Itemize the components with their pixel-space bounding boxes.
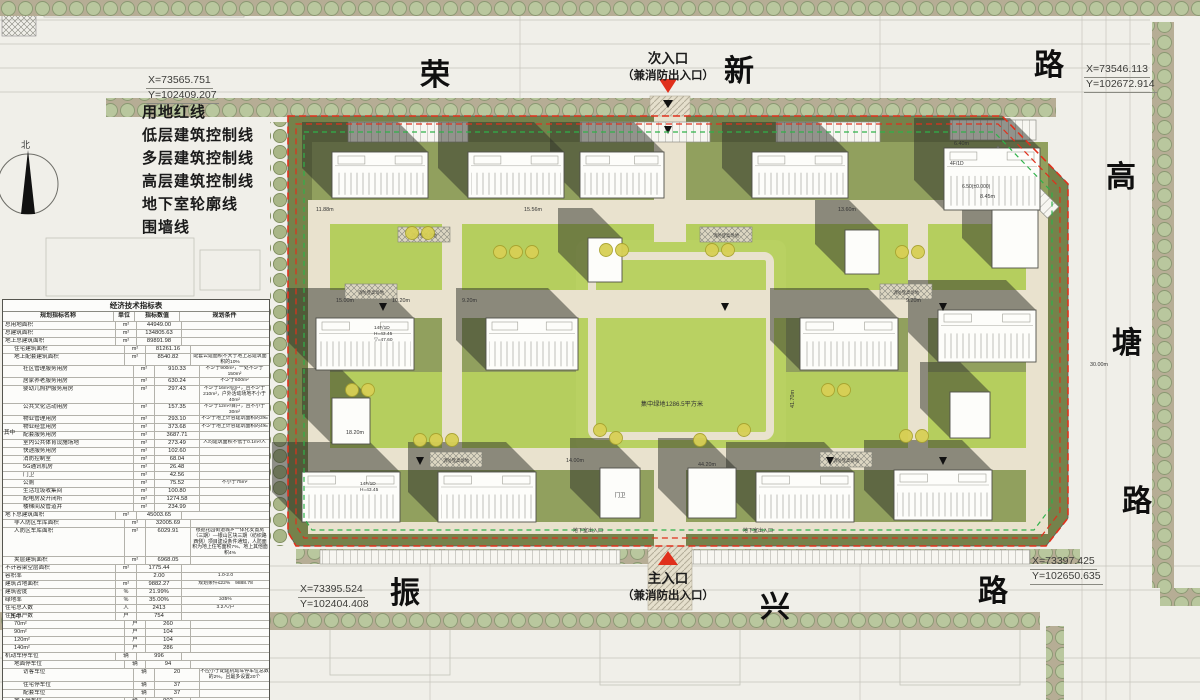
table-cell: 3.2人/户 [182,605,269,613]
building-facade [471,173,561,195]
building-floor-label: 14F/1D [360,481,376,487]
table-cell [191,346,269,354]
table-cell: 消防控制室 [3,456,134,464]
entrance-title: 主入口 [598,567,738,587]
table-header: 单位 [114,312,135,322]
table-cell: 户 [116,613,137,621]
table-cell: m² [134,472,155,480]
table-cell [200,448,269,456]
table-header-row: 规划指标名称 单位 指标数值 规划条件 [3,312,269,322]
table-row: 120m²户104 [3,637,269,645]
table-cell: 104 [146,637,191,645]
table-cell: m² [134,496,155,504]
road-name-top: 路 [1034,40,1064,84]
legend-item: 围墙线 [142,216,254,239]
dim-label: 14.00m [566,458,584,464]
table-cell: m² [116,565,137,573]
table-cell: 机动车停车位 [3,653,116,661]
table-cell [182,653,269,661]
building-facade [583,173,661,195]
coordinate-top-right: X=73546.113 Y=102672.914 [1084,63,1157,93]
table-cell: m² [116,322,137,330]
coordinate-y: Y=102650.635 [1030,570,1103,585]
table-cell: 297.43 [155,386,200,404]
table-cell [191,621,269,629]
building-facade [803,341,895,366]
building-facade [489,341,575,366]
table-cell: 44949.00 [137,322,182,330]
road-name-bottom: 兴 [760,582,790,626]
table-cell: 辆 [116,653,137,661]
table-row: 人防区车库面积m²6029.91根据花园街道城乡一体化安置房（三期）—银山区块三… [3,528,269,557]
table-cell: 地上总建筑面积 [3,338,116,346]
parking-row [690,550,1030,564]
table-cell: m² [134,464,155,472]
building [950,392,990,438]
building-facade [305,495,397,519]
table-cell: 门卫 [3,472,134,480]
road-name-bottom: 路 [978,566,1008,610]
table-cell: m² [125,557,146,565]
table-cell: 公厕 [3,480,134,488]
entrance-subtitle: （兼消防出入口） [598,67,738,83]
table-cell: m² [134,432,155,440]
table-cell: m² [134,366,155,378]
table-row: 楼梯间及管道井m²234.99 [3,504,269,512]
table-cell: 根据花园街道城乡一体化安置房（三期）—银山区块三期（纺织路西侧）项目建设条件通知… [191,528,269,557]
table-row: 总用地面积m²44949.00 [3,322,269,330]
dim-label: 18.20m [346,430,364,436]
table-cell: 人防区车库面积 [3,528,125,557]
coordinate-y: Y=102409.207 [146,89,219,104]
table-cell: 辆 [125,661,146,669]
tree-icon [706,244,719,257]
table-row: 生活垃圾收集间m²100.80 [3,488,269,496]
entrance-subtitle: （兼消防出入口） [598,587,738,603]
building-height-label: H=43.45 [360,487,379,493]
table-cell [191,520,269,528]
tree-icon [406,227,419,240]
tree-icon [822,384,835,397]
table-row: 地下总建筑面积m²45003.65 [3,512,269,520]
table-cell: m² [125,354,146,366]
road-name-top: 荣 [420,50,450,94]
dim-label: 9.20m [462,298,477,304]
table-cell: 住宅停车位 [3,682,134,690]
table-cell: 910.33 [155,366,200,378]
table-cell: 地面停车位 [3,661,125,669]
table-row: 建筑密度%21.99% [3,589,269,597]
tree-icon [414,434,427,447]
entrance-title: 次入口 [598,47,738,67]
table-cell: 总建筑面积 [3,330,116,338]
road-name-right: 高 [1106,152,1136,196]
table-cell [182,565,269,573]
table-cell [191,557,269,565]
table-cell: 户 [125,637,146,645]
table-cell: 373.68 [155,424,200,432]
table-cell: % [116,597,137,605]
indicator-table: 经济技术指标表 规划指标名称 单位 指标数值 规划条件 总用地面积m²44949… [2,299,270,700]
building-level-label: ▽=47.60 [374,337,393,343]
table-row: 夹层建筑面积m²6968.05 [3,557,269,565]
table-row: 婴幼儿照护服务用房m²297.43不少于16m²/园户，且不少于210m²，户外… [3,386,269,404]
table-cell: m² [134,404,155,416]
tree-icon [430,434,443,447]
dim-label: 11.88m [316,207,334,213]
coordinate-x: X=73565.751 [146,74,213,89]
table-cell: 人 [116,605,137,613]
table-cell: 1.0-2.0 [182,573,269,581]
table-cell: 234.99 [155,504,200,512]
tree-icon [722,244,735,257]
table-row: 公共文化活动用房m²157.35不少于12m²/百户，且不小于30m² [3,404,269,416]
table-cell: 辆 [134,690,155,698]
table-row: 建筑占地面积m²9882.27规划条件≤22% 9888.78 [3,581,269,589]
fire-pad-label: 消防登高场地 [893,289,919,296]
table-cell [200,472,269,480]
table-row: 140m²户286 [3,645,269,653]
table-cell: 物业管理用房 [3,416,134,424]
table-cell: 134805.63 [137,330,182,338]
table-row: 机动车停车位辆996 [3,653,269,661]
table-row: 地面停车位辆94 [3,661,269,669]
table-cell: m² [134,456,155,464]
table-cell: 104 [146,629,191,637]
table-cell [191,661,269,669]
table-row: 公厕m²75.52不小于75m² [3,480,269,488]
main-entrance-label: 主入口 （兼消防出入口） [598,567,738,603]
tree-icon [346,384,359,397]
table-cell: 人均建筑面积不低于0.1m²/人 [200,440,269,448]
table-cell: 2.00 [137,573,182,581]
tree-icon [694,434,707,447]
table-cell [182,338,269,346]
table-row: 容积率2.001.0-2.0 [3,573,269,581]
central-lawn-label: 集中绿地1286.5平方米 [641,400,703,408]
building-facade [335,173,425,195]
table-cell: 3687.71 [155,432,200,440]
table-row: 住宅停车位辆37 [3,682,269,690]
building-facade [441,495,533,519]
table-cell: 总用地面积 [3,322,116,330]
tree-icon [362,384,375,397]
building-facade [759,495,851,519]
table-row: 住宅总人数人24133.2人/户 [3,605,269,613]
table-cell: 8540.82 [146,354,191,366]
table-cell: 婴幼儿照护服务用房 [3,386,134,404]
table-cell: 辆 [134,669,155,681]
table-cell: 生活垃圾收集间 [3,488,134,496]
table-cell: 37 [155,690,200,698]
table-row: 70m²户260 [3,621,269,629]
table-cell: m² [116,581,137,589]
gatehouse-label: 门卫 [614,491,626,499]
tree-icon [912,246,925,259]
table-cell: 楼梯间及管道井 [3,504,134,512]
north-label: 北 [21,140,30,150]
table-cell: 社区管理服务用房 [3,366,134,378]
table-cell: 不少于地上计容建筑面积的4‰ [200,424,269,432]
table-cell [182,322,269,330]
table-cell [200,690,269,698]
table-cell: 绿地率 [3,597,116,605]
building-facade [755,173,845,195]
table-cell: 100.80 [155,488,200,496]
tree-icon [838,384,851,397]
table-cell [200,504,269,512]
table-cell: 地下总建筑面积 [3,512,116,520]
legend-item: 多层建筑控制线 [142,147,254,170]
table-cell: 不少于600m² [200,378,269,386]
table-cell: 户 [125,621,146,629]
table-cell: 不少于900m²，一处不少于150m² [200,366,269,378]
table-row: 社区管理服务用房m²910.33不少于900m²，一处不少于150m² [3,366,269,378]
legend-item: 低层建筑控制线 [142,124,254,147]
building [992,210,1038,268]
table-row: 住宅建筑面积m²81261.16 [3,346,269,354]
tree-icon [616,244,629,257]
table-cell: 21.99% [137,589,182,597]
table-cell: 快递服务用房 [3,448,134,456]
table-cell: m² [134,488,155,496]
table-row: 快递服务用房m²102.60 [3,448,269,456]
table-cell: 物业经营用房 [3,424,134,432]
table-cell: m² [134,448,155,456]
table-cell [191,637,269,645]
table-cell: 273.49 [155,440,200,448]
table-cell: 居家养老服务用房 [3,378,134,386]
table-cell: 不少于16m²/园户，且不少于210m²，户外活动场地不小于40m² [200,386,269,404]
table-row: 总建筑面积m²134805.63 [3,330,269,338]
table-cell [191,629,269,637]
road-name-right: 塘 [1112,318,1142,362]
table-cell: 5G通讯机房 [3,464,134,472]
table-cell: 1775.44 [137,565,182,573]
table-cell: 配套服务用房 [3,432,134,440]
table-row: 不计容架空层面积m²1775.44 [3,565,269,573]
fire-pad-label: 消防登高场地 [713,232,739,239]
table-row: 非人防区车库面积m²32005.69 [3,520,269,528]
table-cell: m² [134,386,155,404]
table-cell: 配套公建面积不大于地上总建筑面积的10% [191,354,269,366]
tree-icon [594,424,607,437]
dim-label: 6.40m [954,141,969,147]
table-row: 5G通讯机房m²26.48 [3,464,269,472]
table-cell: 70m² [3,621,125,629]
table-header: 指标数值 [135,312,180,322]
table-cell: 住宅建筑面积 [3,346,125,354]
table-cell: 35.00% [137,597,182,605]
table-cell [182,613,269,621]
table-cell: 754 [137,613,182,621]
coordinate-x: X=73395.524 [298,583,365,598]
tree-icon [896,246,909,259]
tree-icon [510,246,523,259]
table-cell: 32005.69 [146,520,191,528]
table-cell: 89891.98 [137,338,182,346]
table-row: 配套车位辆37 [3,690,269,698]
table-cell: 1274.58 [155,496,200,504]
parking-row [320,550,620,564]
table-cell: 6968.05 [146,557,191,565]
site-plan-sheet: 消防登高场地消防登高场地消防登高场地消防登高场地消防登高场地消防登高场地 北 集… [0,0,1200,700]
table-cell: 260 [146,621,191,629]
table-cell: 建筑占地面积 [3,581,116,589]
table-cell [200,464,269,472]
table-cell: 辆 [134,682,155,690]
coordinate-x: X=73546.113 [1084,63,1150,78]
indicator-table-rows: 总用地面积m²44949.00总建筑面积m²134805.63地上总建筑面积m²… [3,322,269,700]
coordinate-bottom-right: X=73397.425 Y=102650.635 [1030,555,1103,585]
table-header: 规划指标名称 [3,312,114,322]
fire-pad-label: 消防登高场地 [443,457,469,464]
table-cell: 293.10 [155,416,200,424]
table-cell [182,512,269,520]
table-cell: m² [134,480,155,488]
table-group-label: 其中 [4,428,15,436]
table-cell: 不计容架空层面积 [3,565,116,573]
table-cell: 102.60 [155,448,200,456]
table-cell: 68.04 [155,456,200,464]
table-cell: 140m² [3,645,125,653]
table-cell: 建筑密度 [3,589,116,597]
tower-floor-label: 4F/1D [950,161,964,167]
dim-label: 8.45m [980,194,995,200]
table-cell: 630.24 [155,378,200,386]
table-cell [116,573,137,581]
table-cell: 42.56 [155,472,200,480]
table-row: 消防控制室m²68.04 [3,456,269,464]
table-cell: 夹层建筑面积 [3,557,125,565]
table-cell [200,456,269,464]
table-group-label: 其中 [10,612,21,620]
dim-label: 10.20m [392,298,410,304]
table-cell: m² [134,416,155,424]
table-cell: 室内公共体育设施场地 [3,440,134,448]
table-cell: m² [116,338,137,346]
building [845,230,879,274]
table-row: 室内公共体育设施场地m²273.49人均建筑面积不低于0.1m²/人 [3,440,269,448]
table-cell: 不少于地上计容建筑面积的3‰ [200,416,269,424]
building-height-label: H=43.45 [374,331,393,337]
dim-label: 9.20m [906,298,921,304]
table-cell: m² [116,512,137,520]
table-cell: 非人防区车库面积 [3,520,125,528]
coordinate-top-left: X=73565.751 Y=102409.207 [146,74,219,104]
fire-pad-label: 消防登高场地 [358,289,384,296]
table-cell: m² [134,440,155,448]
table-cell [191,645,269,653]
table-cell: 6029.91 [146,528,191,557]
tree-icon [422,227,435,240]
table-row: 门卫m²42.56 [3,472,269,480]
table-cell [200,496,269,504]
table-row: 配电房及开闭所m²1274.58 [3,496,269,504]
table-cell: 容积率 [3,573,116,581]
table-cell: 不应小于配建机动车停车位总数的2%，且最多设置20个 [200,669,269,681]
legend-item: 高层建筑控制线 [142,170,254,193]
tree-icon [526,246,539,259]
table-row: 地上配套建筑面积m²8540.82配套公建面积不大于地上总建筑面积的10% [3,354,269,366]
tree-icon [738,424,751,437]
dim-label: 30.00m [1090,362,1108,368]
table-cell: m² [134,504,155,512]
tree-icon [610,432,623,445]
coordinate-y: Y=102672.914 [1084,78,1157,93]
dim-label: 41.70m [790,390,796,408]
basement-entry-label: 地下室出入口 [573,527,603,534]
building-floor-label: 14F/1D [374,325,390,331]
table-cell [182,589,269,597]
building-facade [947,176,1037,206]
road-name-right: 路 [1122,476,1152,520]
table-cell: 157.35 [155,404,200,416]
dim-label: 15.56m [524,207,542,213]
dim-label: 44.20m [698,462,716,468]
tree-icon [916,430,929,443]
fire-pad-label: 消防登高场地 [833,457,859,464]
table-cell: % [116,589,137,597]
table-cell: 不少于12m²/百户，且不小于30m² [200,404,269,416]
table-row: 访客车位辆20不应小于配建机动车停车位总数的2%，且最多设置20个 [3,669,269,681]
dim-label: 15.00m [336,298,354,304]
table-cell: 75.52 [155,480,200,488]
table-cell: 户 [125,645,146,653]
building [332,398,370,444]
table-cell: 45003.65 [137,512,182,520]
table-row: 绿地率%35.00%≥35% [3,597,269,605]
table-cell: m² [125,520,146,528]
coordinate-bottom-left: X=73395.524 Y=102404.408 [298,583,371,613]
table-cell: 90m² [3,629,125,637]
table-row: 配套服务用房m²3687.71 [3,432,269,440]
table-cell: 配套车位 [3,690,134,698]
table-cell: 120m² [3,637,125,645]
dim-label: 13.60m [838,207,856,213]
table-cell: 访客车位 [3,669,134,681]
coordinate-y: Y=102404.408 [298,598,371,613]
table-row: 住宅总户数户754 [3,613,269,621]
table-header: 规划条件 [180,312,269,322]
road-name-bottom: 振 [390,568,420,612]
tower-level-label: 6.50(±0.000) [962,184,991,190]
table-row: 物业管理用房m²293.10不少于地上计容建筑面积的3‰ [3,416,269,424]
table-cell [200,682,269,690]
table-cell: 户 [125,629,146,637]
table-cell: 37 [155,682,200,690]
table-cell: 81261.16 [146,346,191,354]
table-cell: m² [134,424,155,432]
table-cell: 公共文化活动用房 [3,404,134,416]
table-cell [200,432,269,440]
table-cell: m² [125,346,146,354]
building [688,468,736,518]
building-facade [897,493,989,517]
tree-icon [600,244,613,257]
table-cell [200,488,269,496]
table-cell: m² [125,528,146,557]
table-cell: 2413 [137,605,182,613]
table-cell: 9882.27 [137,581,182,589]
table-row: 居家养老服务用房m²630.24不少于600m² [3,378,269,386]
table-cell: 20 [155,669,200,681]
table-cell: 配电房及开闭所 [3,496,134,504]
table-row: 90m²户104 [3,629,269,637]
table-cell [182,330,269,338]
building-facade [941,333,1033,358]
table-cell: 地上配套建筑面积 [3,354,125,366]
